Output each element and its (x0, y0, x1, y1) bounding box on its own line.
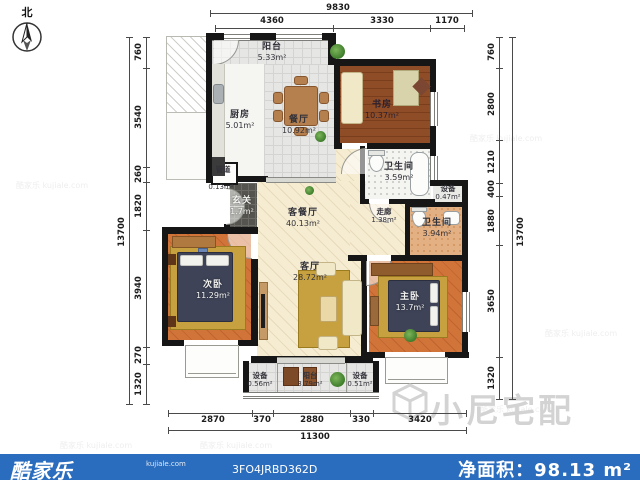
balcony-sliding-door (277, 357, 345, 364)
label-entry: 玄关1.7m² (210, 196, 274, 217)
tiled-watermark: 酷家乐 kujiale.com (60, 440, 132, 451)
north-compass: 北 (10, 4, 44, 58)
dim-left-seg: 1820 (134, 194, 144, 218)
footer-bar: 酷家乐 kujiale.com 3FO4JRBD362D 净面积：98.13 m… (0, 454, 640, 480)
dim-line-bottom-segments (168, 413, 467, 414)
dim-right-seg: 1880 (487, 209, 497, 233)
tiled-watermark: 酷家乐 kujiale.com (16, 180, 88, 191)
dim-left-seg: 270 (134, 346, 144, 364)
tv (261, 294, 265, 328)
dim-bottom-seg: 2880 (300, 415, 324, 425)
label-living-dining: 客餐厅40.13m² (271, 208, 335, 229)
label-master: 主卧13.7m² (378, 292, 442, 313)
plant-icon (330, 44, 345, 59)
dining-chair (294, 76, 308, 85)
dining-chair (273, 92, 283, 104)
dim-right-seg: 2800 (487, 92, 497, 116)
coffee-table (320, 296, 337, 322)
net-area-label: 净面积：98.13 m² (458, 456, 632, 482)
dim-left-seg: 3940 (134, 276, 144, 300)
dim-left-seg: 760 (134, 43, 144, 61)
dim-top-seg: 3330 (370, 16, 394, 26)
dim-right-seg: 760 (487, 43, 497, 61)
label-bath2: 卫生间3.94m² (405, 218, 469, 239)
dim-right-total: 13700 (516, 217, 526, 247)
dim-right-seg: 1320 (487, 366, 497, 390)
dim-bottom-seg: 2870 (201, 415, 225, 425)
dim-line-left-segments (146, 37, 147, 405)
dim-left-seg: 260 (134, 165, 144, 183)
dim-line-left-total (129, 37, 130, 405)
dim-right-seg: 1210 (487, 150, 497, 174)
label-equip1: 设备0.47m² (416, 184, 480, 202)
label-duct-area: 0.13m² (189, 183, 253, 192)
label-balcony-top: 阳台5.33m² (240, 42, 304, 63)
plant-icon (305, 186, 314, 195)
balcony-bottom-window (243, 392, 379, 399)
dim-top-seg: 1170 (435, 16, 459, 26)
kitchen-sink (213, 84, 224, 104)
living-sofa (342, 280, 362, 336)
dim-line-right-segments (499, 37, 500, 400)
label-equip3: 设备0.51m² (328, 371, 392, 389)
label-kitchen: 厨房5.01m² (208, 110, 272, 131)
label-living: 客厅28.72m² (278, 262, 342, 283)
label-duct: 管道 (191, 165, 255, 174)
nightstand (168, 254, 176, 265)
armchair (318, 336, 338, 350)
dim-line-top-segments (215, 28, 465, 29)
label-study: 书房10.37m² (350, 100, 414, 121)
master-wardrobe (371, 263, 433, 276)
kujiale-url: kujiale.com (146, 460, 186, 468)
dim-right-seg: 400 (487, 180, 497, 198)
bay-window-master (385, 357, 448, 384)
dim-left-total: 13700 (117, 217, 127, 247)
study-top-wall (334, 59, 436, 66)
pillow (206, 255, 229, 266)
dim-line-bottom-total (168, 430, 467, 431)
dining-sliding-door (266, 177, 336, 183)
plan-code: 3FO4JRBD362D (232, 463, 317, 476)
label-bedroom2: 次卧11.29m² (181, 280, 245, 301)
dim-bottom-seg: 3420 (408, 415, 432, 425)
dim-top-seg: 4360 (260, 16, 284, 26)
tiled-watermark: 酷家乐 kujiale.com (200, 440, 272, 451)
nightstand (168, 316, 176, 327)
label-dining: 餐厅10.92m² (267, 115, 331, 136)
toilet-tank (368, 150, 385, 156)
main-watermark: 小尼宅配 (430, 384, 574, 432)
dim-left-seg: 3540 (134, 105, 144, 129)
dim-left-seg: 1320 (134, 372, 144, 396)
bedroom2-desk (172, 236, 216, 248)
tiled-watermark: 酷家乐 kujiale.com (470, 133, 542, 144)
pillow (180, 255, 203, 266)
dim-right-seg: 3650 (487, 289, 497, 313)
tiled-watermark: 酷家乐 kujiale.com (545, 328, 617, 339)
dim-line-right-total (512, 37, 513, 400)
plant-icon (404, 329, 417, 342)
dim-bottom-seg: 330 (352, 415, 370, 425)
dim-line-top-total (210, 13, 473, 14)
dim-bottom-seg: 370 (253, 415, 271, 425)
label-bath1: 卫生间3.59m² (367, 162, 431, 183)
north-label: 北 (10, 4, 44, 20)
dim-top-total: 9830 (326, 3, 350, 13)
dim-bottom-total: 11300 (300, 432, 330, 442)
dining-chair (319, 92, 329, 104)
compass-icon (10, 20, 44, 54)
